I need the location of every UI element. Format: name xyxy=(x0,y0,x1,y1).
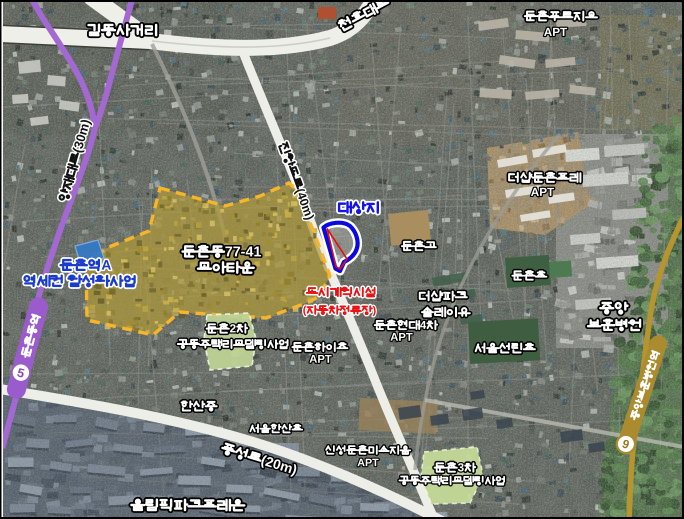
svg-text:APT: APT xyxy=(531,186,555,199)
svg-text:77-41: 77-41 xyxy=(225,244,262,260)
svg-text:): ) xyxy=(372,305,376,317)
svg-text:APT: APT xyxy=(390,332,413,344)
svg-text:(: ( xyxy=(303,305,307,317)
svg-text:4: 4 xyxy=(420,320,427,332)
svg-text:APT: APT xyxy=(357,457,379,469)
svg-text:APT: APT xyxy=(309,354,332,366)
svg-text:A: A xyxy=(101,258,111,273)
svg-text:3: 3 xyxy=(458,461,465,474)
svg-text:APT: APT xyxy=(544,26,568,39)
svg-text:2: 2 xyxy=(230,322,237,335)
